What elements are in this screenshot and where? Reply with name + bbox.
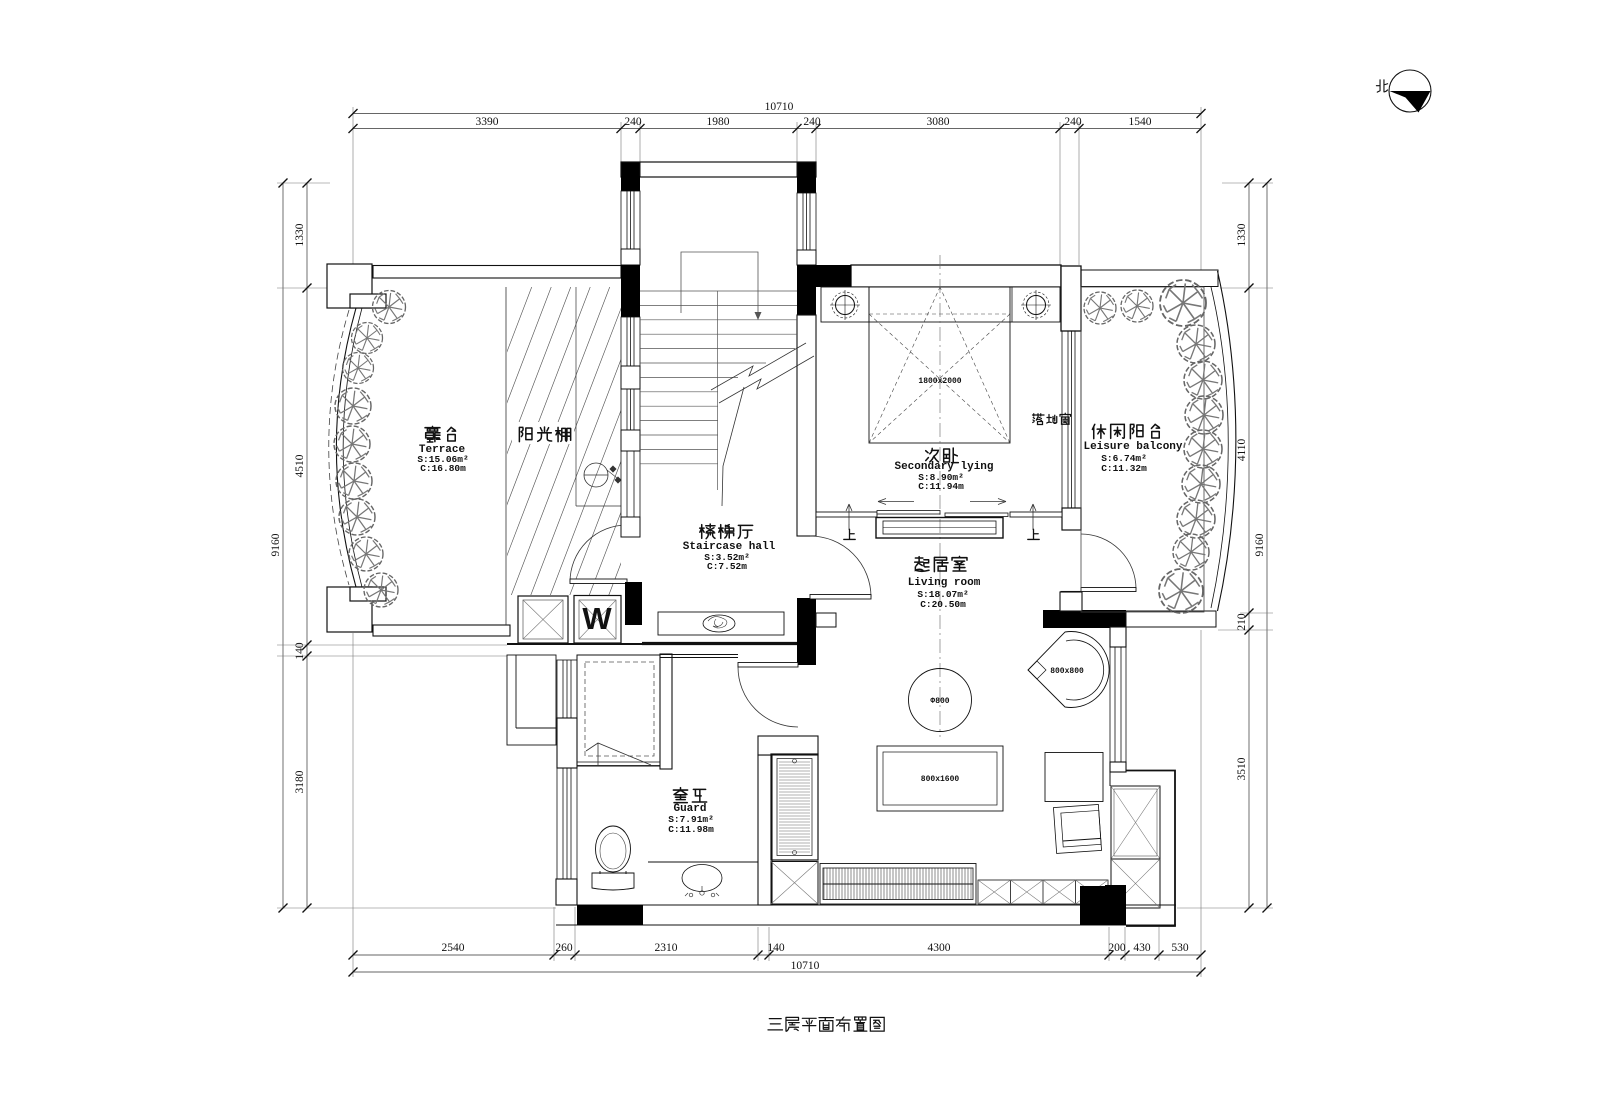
svg-text:140: 140 xyxy=(294,642,306,660)
svg-text:240: 240 xyxy=(624,116,642,128)
svg-text:3180: 3180 xyxy=(294,770,306,793)
svg-text:C:20.50m: C:20.50m xyxy=(920,599,966,610)
svg-text:4300: 4300 xyxy=(928,942,951,954)
svg-text:Leisure balcony: Leisure balcony xyxy=(1083,441,1182,453)
svg-text:10710: 10710 xyxy=(765,101,794,113)
svg-text:C:7.52m: C:7.52m xyxy=(707,561,747,572)
svg-text:800x800: 800x800 xyxy=(1050,667,1084,676)
svg-text:3390: 3390 xyxy=(476,116,499,128)
svg-text:240: 240 xyxy=(803,116,821,128)
svg-text:1330: 1330 xyxy=(1236,223,1248,246)
svg-text:1330: 1330 xyxy=(294,223,306,246)
svg-text:9160: 9160 xyxy=(270,533,282,556)
svg-text:3510: 3510 xyxy=(1236,757,1248,780)
svg-text:210: 210 xyxy=(1236,613,1248,631)
svg-text:C:11.98m: C:11.98m xyxy=(668,824,714,835)
svg-text:800x1600: 800x1600 xyxy=(921,775,960,784)
svg-text:4110: 4110 xyxy=(1236,438,1248,461)
svg-text:Living room: Living room xyxy=(908,577,981,589)
svg-text:1800x2000: 1800x2000 xyxy=(918,377,961,386)
svg-text:200: 200 xyxy=(1108,942,1126,954)
svg-text:260: 260 xyxy=(555,942,573,954)
svg-text:C:11.94m: C:11.94m xyxy=(918,481,964,492)
svg-text:10710: 10710 xyxy=(791,960,820,972)
svg-text:530: 530 xyxy=(1171,942,1189,954)
svg-text:2310: 2310 xyxy=(655,942,678,954)
svg-text:W: W xyxy=(582,601,612,636)
svg-text:1540: 1540 xyxy=(1129,116,1152,128)
svg-text:C:11.32m: C:11.32m xyxy=(1101,463,1147,474)
svg-text:430: 430 xyxy=(1133,942,1151,954)
svg-text:240: 240 xyxy=(1064,116,1082,128)
svg-text:9160: 9160 xyxy=(1254,533,1266,556)
svg-text:2540: 2540 xyxy=(442,942,465,954)
svg-text:C:16.80m: C:16.80m xyxy=(420,463,466,474)
svg-text:3080: 3080 xyxy=(927,116,950,128)
svg-text:Φ800: Φ800 xyxy=(930,697,949,706)
svg-text:1980: 1980 xyxy=(707,116,730,128)
svg-text:140: 140 xyxy=(767,942,785,954)
svg-text:4510: 4510 xyxy=(294,454,306,477)
